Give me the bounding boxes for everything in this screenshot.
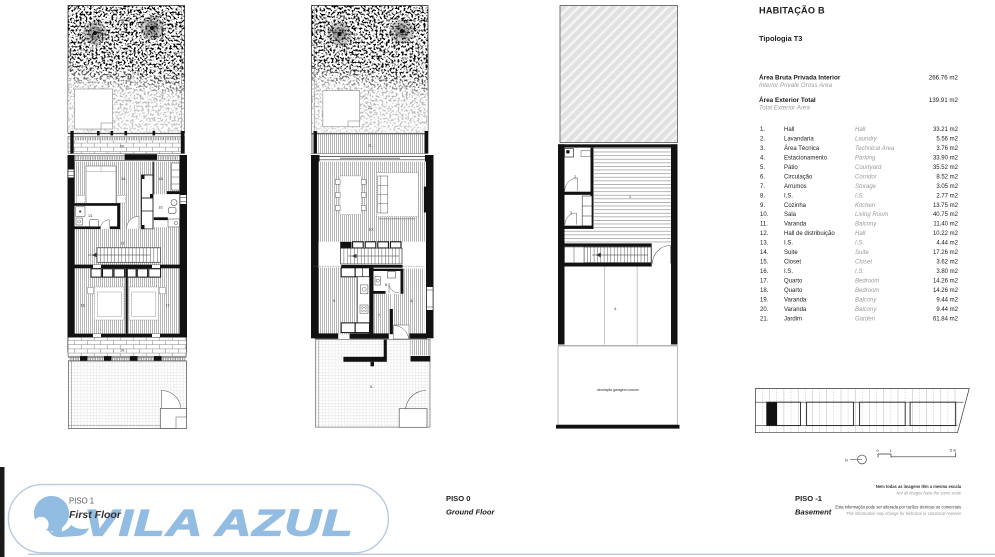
svg-text:18.: 18. bbox=[81, 304, 86, 308]
svg-text:Balcony: Balcony bbox=[855, 298, 877, 304]
svg-text:10.: 10. bbox=[760, 212, 769, 218]
svg-text:11.40 m2: 11.40 m2 bbox=[933, 222, 958, 228]
svg-text:2.: 2. bbox=[760, 137, 765, 143]
svg-text:I.S.: I.S. bbox=[855, 269, 864, 275]
svg-text:Sala: Sala bbox=[784, 212, 797, 218]
svg-text:21.: 21. bbox=[760, 316, 769, 322]
svg-text:Jardim: Jardim bbox=[784, 316, 802, 322]
svg-text:13.75 m2: 13.75 m2 bbox=[933, 203, 959, 209]
svg-text:4.44 m2: 4.44 m2 bbox=[936, 241, 958, 247]
svg-text:3.62 m2: 3.62 m2 bbox=[936, 260, 958, 266]
svg-text:Hall: Hall bbox=[855, 127, 866, 133]
svg-text:10.22 m2: 10.22 m2 bbox=[933, 231, 959, 237]
svg-text:Pátio: Pátio bbox=[784, 165, 798, 171]
svg-text:8.: 8. bbox=[385, 283, 388, 287]
svg-text:9.: 9. bbox=[333, 299, 336, 303]
svg-text:14.: 14. bbox=[121, 177, 126, 181]
svg-text:Esta informação pode ser alter: Esta informação pode ser alterada por ra… bbox=[835, 505, 961, 510]
svg-text:Suite: Suite bbox=[855, 250, 869, 256]
svg-text:Garden: Garden bbox=[855, 316, 876, 322]
svg-text:61.84 m2: 61.84 m2 bbox=[933, 316, 959, 322]
svg-text:9.: 9. bbox=[760, 203, 765, 209]
svg-text:Storage: Storage bbox=[855, 184, 877, 190]
svg-text:7.: 7. bbox=[378, 314, 381, 318]
svg-text:266.76 m2: 266.76 m2 bbox=[929, 75, 959, 82]
svg-text:Total Exterior Area: Total Exterior Area bbox=[759, 105, 810, 112]
svg-text:I.S.: I.S. bbox=[855, 193, 864, 199]
svg-text:6.: 6. bbox=[411, 299, 414, 303]
svg-text:Quarto: Quarto bbox=[784, 288, 803, 294]
svg-text:11.: 11. bbox=[368, 144, 373, 148]
svg-text:Estacionamento: Estacionamento bbox=[784, 155, 828, 161]
svg-text:14.26 m2: 14.26 m2 bbox=[933, 288, 959, 294]
svg-text:PISO -1: PISO -1 bbox=[795, 494, 823, 503]
svg-text:12.: 12. bbox=[760, 231, 769, 237]
svg-text:Quarto: Quarto bbox=[784, 279, 803, 285]
svg-text:VILA AZUL: VILA AZUL bbox=[84, 503, 354, 544]
svg-text:16.: 16. bbox=[760, 269, 769, 275]
svg-text:circulação garagem comum: circulação garagem comum bbox=[597, 388, 639, 392]
svg-text:4.: 4. bbox=[614, 307, 617, 311]
svg-text:Tipologia T3: Tipologia T3 bbox=[759, 34, 802, 43]
svg-text:8.52 m2: 8.52 m2 bbox=[936, 174, 958, 180]
svg-text:Living Room: Living Room bbox=[855, 212, 888, 218]
svg-text:Bedroom: Bedroom bbox=[855, 279, 879, 285]
svg-text:Arrumos: Arrumos bbox=[784, 184, 807, 190]
svg-text:PISO 0: PISO 0 bbox=[446, 494, 470, 503]
svg-text:6.: 6. bbox=[760, 174, 765, 180]
svg-text:19.: 19. bbox=[120, 349, 125, 353]
svg-text:Cozinha: Cozinha bbox=[784, 203, 807, 209]
svg-text:12.: 12. bbox=[121, 242, 126, 246]
svg-text:Varanda: Varanda bbox=[784, 298, 807, 304]
svg-text:4.: 4. bbox=[760, 155, 765, 161]
svg-text:I.S.: I.S. bbox=[784, 269, 793, 275]
svg-text:I.S.: I.S. bbox=[855, 241, 864, 247]
svg-text:2.77 m2: 2.77 m2 bbox=[936, 193, 958, 199]
svg-text:Hall: Hall bbox=[784, 127, 794, 133]
svg-text:I.S.: I.S. bbox=[784, 193, 793, 199]
svg-text:5.56 m2: 5.56 m2 bbox=[936, 137, 958, 143]
svg-text:16.: 16. bbox=[159, 206, 164, 210]
svg-text:Technical Area: Technical Area bbox=[855, 146, 895, 152]
svg-text:Corridor: Corridor bbox=[855, 174, 878, 180]
svg-text:First Floor: First Floor bbox=[69, 509, 122, 521]
svg-text:35.52 m2: 35.52 m2 bbox=[933, 165, 959, 171]
svg-text:7.: 7. bbox=[760, 184, 765, 190]
svg-text:15.: 15. bbox=[760, 260, 769, 266]
svg-text:Área Exterior Total: Área Exterior Total bbox=[759, 95, 816, 104]
svg-text:HABITAÇÃO B: HABITAÇÃO B bbox=[759, 6, 825, 16]
svg-text:8.: 8. bbox=[760, 193, 765, 199]
svg-text:40.75 m2: 40.75 m2 bbox=[933, 212, 959, 218]
svg-text:Parking: Parking bbox=[855, 155, 876, 161]
svg-text:17.26 m2: 17.26 m2 bbox=[933, 250, 959, 256]
svg-text:18.: 18. bbox=[760, 288, 769, 294]
svg-text:17.: 17. bbox=[166, 304, 171, 308]
svg-text:Closet: Closet bbox=[855, 260, 872, 266]
svg-text:3.: 3. bbox=[760, 146, 765, 152]
svg-text:17.: 17. bbox=[760, 279, 769, 285]
svg-text:15.: 15. bbox=[159, 177, 164, 181]
svg-text:139.91 m2: 139.91 m2 bbox=[929, 97, 959, 104]
svg-text:Bedroom: Bedroom bbox=[855, 288, 879, 294]
svg-text:5.: 5. bbox=[760, 165, 765, 171]
svg-text:3.80 m2: 3.80 m2 bbox=[936, 269, 958, 275]
svg-text:10.: 10. bbox=[369, 228, 374, 232]
svg-text:Courtyard: Courtyard bbox=[855, 165, 882, 171]
svg-text:Nem todas as imagens têm a mes: Nem todas as imagens têm a mesma escala bbox=[876, 484, 962, 489]
svg-text:Interior Private Gross Area: Interior Private Gross Area bbox=[759, 82, 833, 89]
svg-text:14.26 m2: 14.26 m2 bbox=[933, 279, 959, 285]
svg-text:Not all images have the same s: Not all images have the same scale bbox=[896, 491, 961, 496]
svg-text:21.: 21. bbox=[368, 106, 373, 110]
svg-text:Varanda: Varanda bbox=[784, 307, 807, 313]
svg-text:Ground Floor: Ground Floor bbox=[446, 508, 496, 517]
svg-text:Balcony: Balcony bbox=[855, 307, 877, 313]
svg-text:Laundry: Laundry bbox=[855, 137, 878, 143]
svg-text:I.S.: I.S. bbox=[784, 241, 793, 247]
svg-text:1.: 1. bbox=[760, 127, 765, 133]
svg-text:19.: 19. bbox=[760, 298, 769, 304]
svg-text:1: 1 bbox=[890, 449, 892, 453]
svg-text:Hall de distribuição: Hall de distribuição bbox=[784, 231, 835, 237]
svg-text:9.44 m2: 9.44 m2 bbox=[936, 307, 958, 313]
svg-text:13.: 13. bbox=[88, 214, 93, 218]
svg-text:Suite: Suite bbox=[784, 250, 798, 256]
svg-text:14.: 14. bbox=[760, 250, 769, 256]
svg-text:Circulação: Circulação bbox=[784, 174, 813, 180]
svg-text:Balcony: Balcony bbox=[855, 222, 877, 228]
svg-text:Hall: Hall bbox=[855, 231, 866, 237]
svg-text:PISO 1: PISO 1 bbox=[69, 496, 94, 505]
svg-text:9.44 m2: 9.44 m2 bbox=[936, 298, 958, 304]
svg-text:13.: 13. bbox=[760, 241, 769, 247]
svg-text:20.: 20. bbox=[120, 145, 125, 149]
svg-text:5.: 5. bbox=[370, 385, 373, 389]
svg-text:Varanda: Varanda bbox=[784, 222, 807, 228]
svg-text:Kitchen: Kitchen bbox=[855, 203, 876, 209]
svg-text:Basement: Basement bbox=[795, 508, 832, 517]
svg-text:0: 0 bbox=[877, 449, 879, 453]
svg-text:1.: 1. bbox=[629, 195, 632, 199]
svg-text:33.90 m2: 33.90 m2 bbox=[933, 155, 959, 161]
svg-text:3.76 m2: 3.76 m2 bbox=[936, 146, 958, 152]
svg-text:20.: 20. bbox=[760, 307, 769, 313]
svg-text:Lavandaria: Lavandaria bbox=[784, 137, 814, 143]
svg-text:Área Técnica: Área Técnica bbox=[784, 145, 820, 152]
svg-text:N: N bbox=[845, 459, 848, 463]
svg-text:This information may change fo: This information may change for technica… bbox=[846, 511, 961, 516]
svg-text:5 m: 5 m bbox=[950, 449, 956, 453]
svg-text:33.21 m2: 33.21 m2 bbox=[933, 127, 959, 133]
svg-text:Área Bruta Privada Interior: Área Bruta Privada Interior bbox=[759, 73, 841, 82]
svg-text:Closet: Closet bbox=[784, 260, 801, 266]
svg-text:11.: 11. bbox=[760, 222, 768, 228]
svg-text:3.05 m2: 3.05 m2 bbox=[936, 184, 958, 190]
